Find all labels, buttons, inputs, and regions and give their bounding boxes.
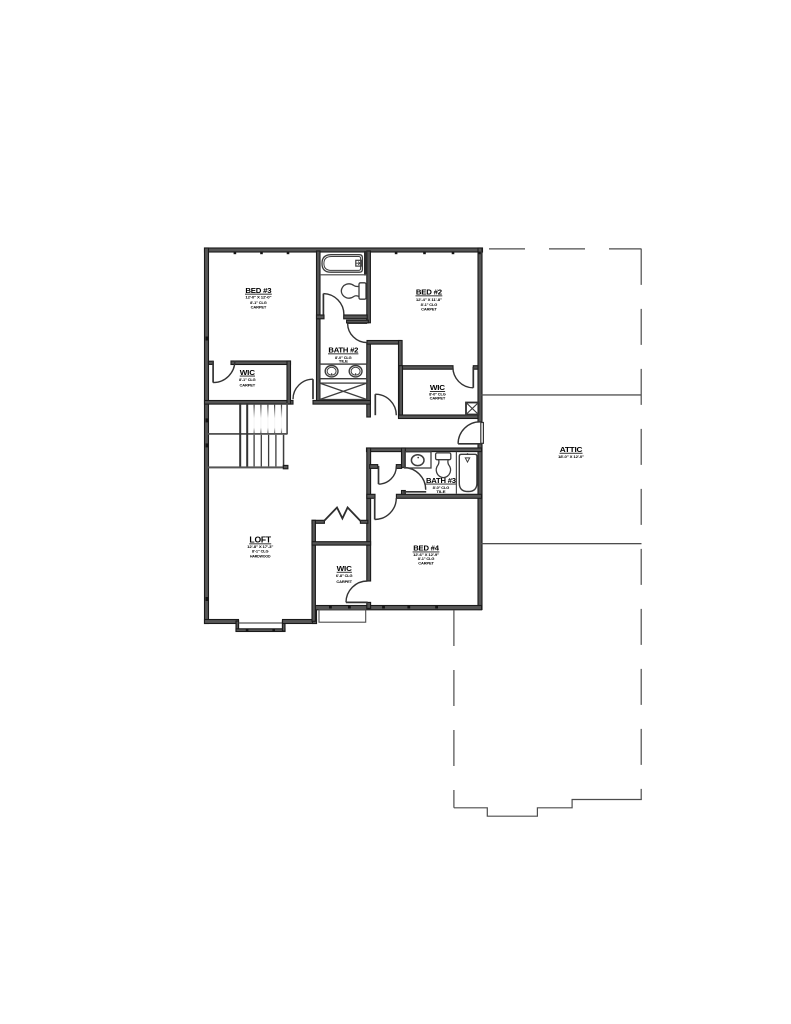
svg-text:8'-1" CLG: 8'-1" CLG <box>252 550 269 554</box>
svg-text:BED #4: BED #4 <box>413 544 440 553</box>
svg-text:8'-1" CLG: 8'-1" CLG <box>239 378 256 382</box>
svg-text:BATH #2: BATH #2 <box>328 346 358 355</box>
svg-text:ATTIC: ATTIC <box>560 445 583 454</box>
svg-text:BED #2: BED #2 <box>416 288 442 297</box>
svg-text:6'-8" CLG: 6'-8" CLG <box>336 574 353 578</box>
svg-text:TILE: TILE <box>339 359 349 363</box>
svg-text:CARPET: CARPET <box>240 383 256 387</box>
svg-text:8'-1" CLG: 8'-1" CLG <box>421 303 438 307</box>
svg-text:LOFT: LOFT <box>249 536 271 545</box>
svg-text:CARPET: CARPET <box>421 308 437 312</box>
svg-text:12'-4" X 11'-8": 12'-4" X 11'-8" <box>416 298 442 302</box>
svg-text:12'-0" X 12'-0": 12'-0" X 12'-0" <box>245 295 271 299</box>
svg-text:CARPET: CARPET <box>251 305 267 309</box>
svg-text:18'-0" X 12'-0": 18'-0" X 12'-0" <box>558 455 584 459</box>
svg-text:8'-1" CLG: 8'-1" CLG <box>250 301 267 305</box>
svg-text:12'-8" X 17'-3": 12'-8" X 17'-3" <box>247 545 273 549</box>
svg-text:WIC: WIC <box>337 564 353 573</box>
svg-text:8'-1" CLG: 8'-1" CLG <box>418 557 435 561</box>
svg-text:HARDWOOD: HARDWOOD <box>250 555 271 559</box>
svg-text:BATH #3: BATH #3 <box>426 476 456 485</box>
svg-text:WIC: WIC <box>240 368 256 377</box>
svg-text:CARPET: CARPET <box>418 561 434 565</box>
svg-text:TILE: TILE <box>436 490 446 494</box>
svg-text:CARPET: CARPET <box>430 397 446 401</box>
svg-text:BED #3: BED #3 <box>245 286 271 295</box>
svg-text:CARPET: CARPET <box>336 580 352 584</box>
svg-text:WIC: WIC <box>430 383 446 392</box>
